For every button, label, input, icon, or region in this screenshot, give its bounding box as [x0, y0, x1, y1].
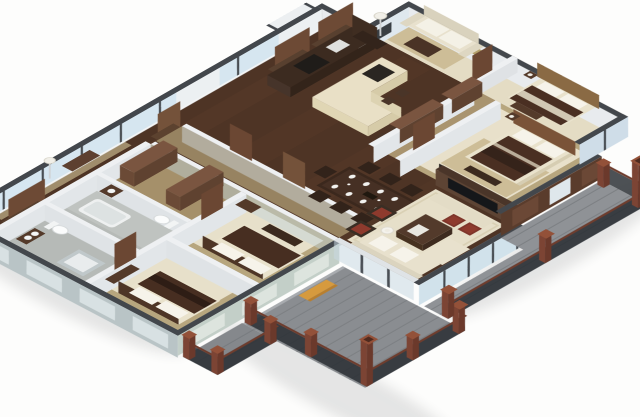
- floor-plan-stage: [0, 0, 640, 417]
- floor-plan-render: [0, 0, 640, 417]
